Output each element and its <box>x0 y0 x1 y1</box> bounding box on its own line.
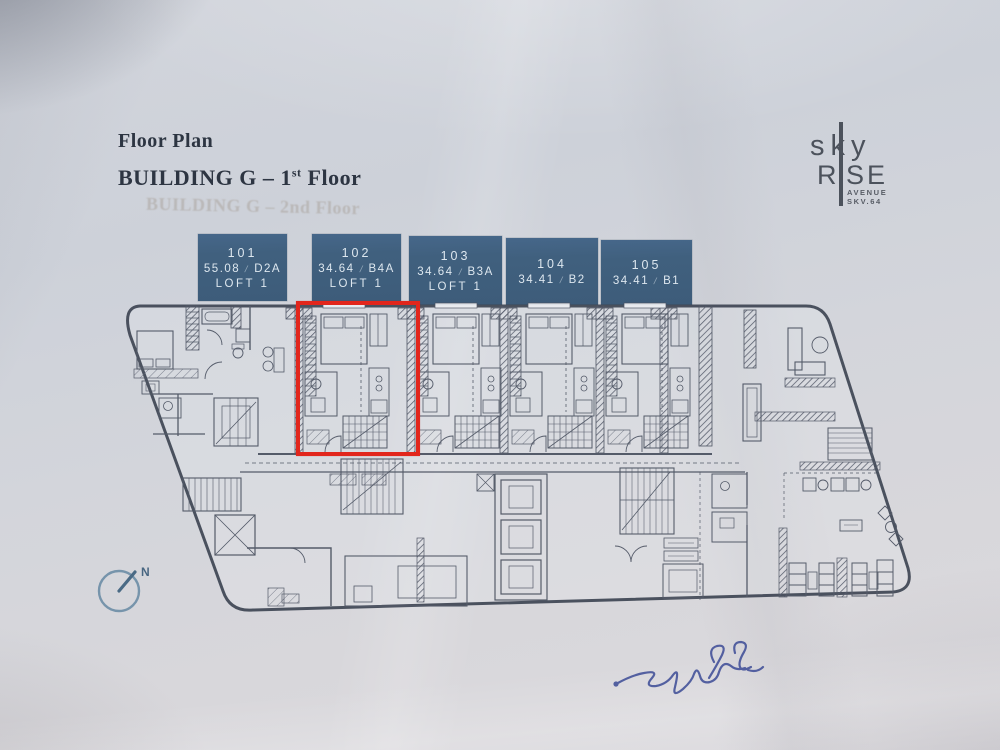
compass: N <box>99 565 150 611</box>
compass-north-label: N <box>141 565 150 579</box>
signature <box>613 642 763 693</box>
floor-plan-drawing: N <box>0 0 1000 750</box>
highlight-rectangle-unit-102 <box>296 301 420 456</box>
